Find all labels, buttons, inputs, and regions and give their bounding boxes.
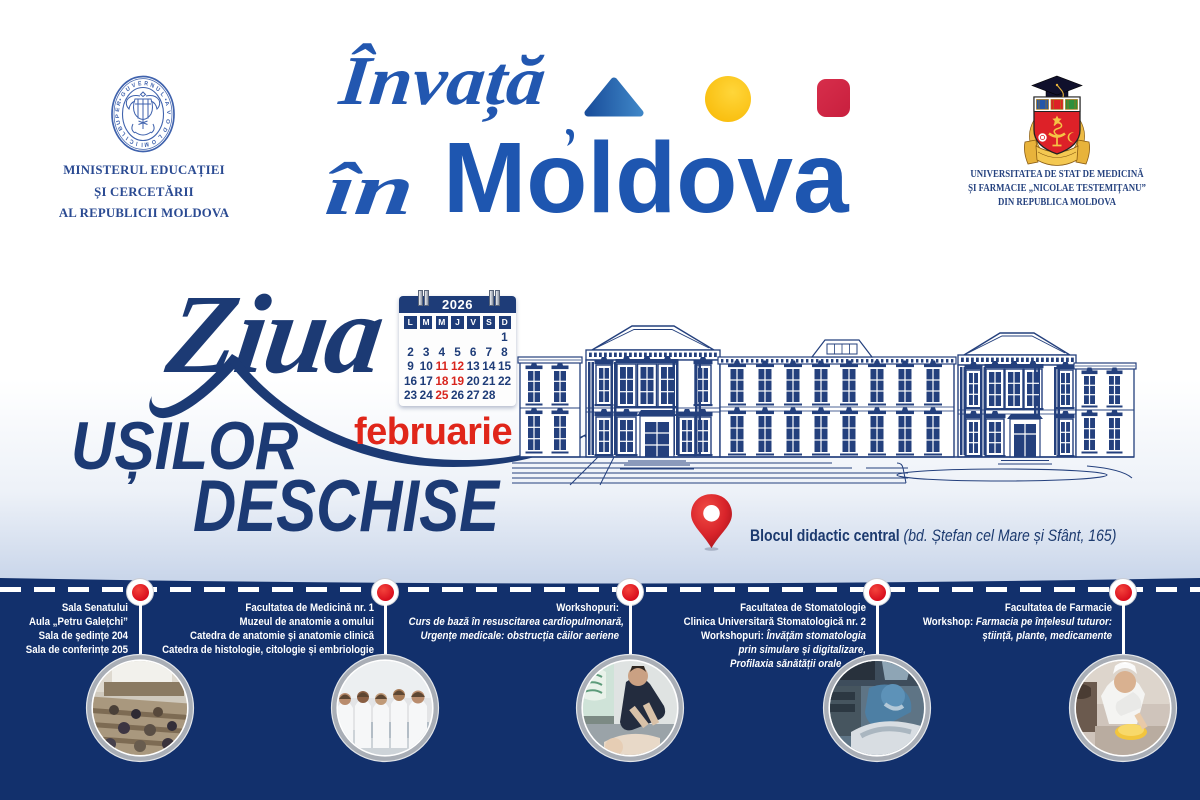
svg-text:P: P (115, 114, 121, 119)
svg-text:M: M (144, 140, 149, 147)
svg-text:V: V (165, 110, 171, 115)
svg-text:E: E (138, 81, 142, 88)
svg-text:A: A (163, 101, 169, 107)
svg-text:L: L (159, 91, 166, 99)
svg-text:U: U (116, 119, 122, 125)
svg-text:I: I (141, 141, 143, 148)
svg-text:I: I (125, 134, 130, 140)
svg-text:R: R (144, 81, 148, 88)
svg-text:O: O (164, 118, 170, 125)
svg-text:I: I (135, 140, 138, 147)
svg-text:D: D (161, 126, 168, 133)
svg-text:E: E (115, 107, 121, 112)
